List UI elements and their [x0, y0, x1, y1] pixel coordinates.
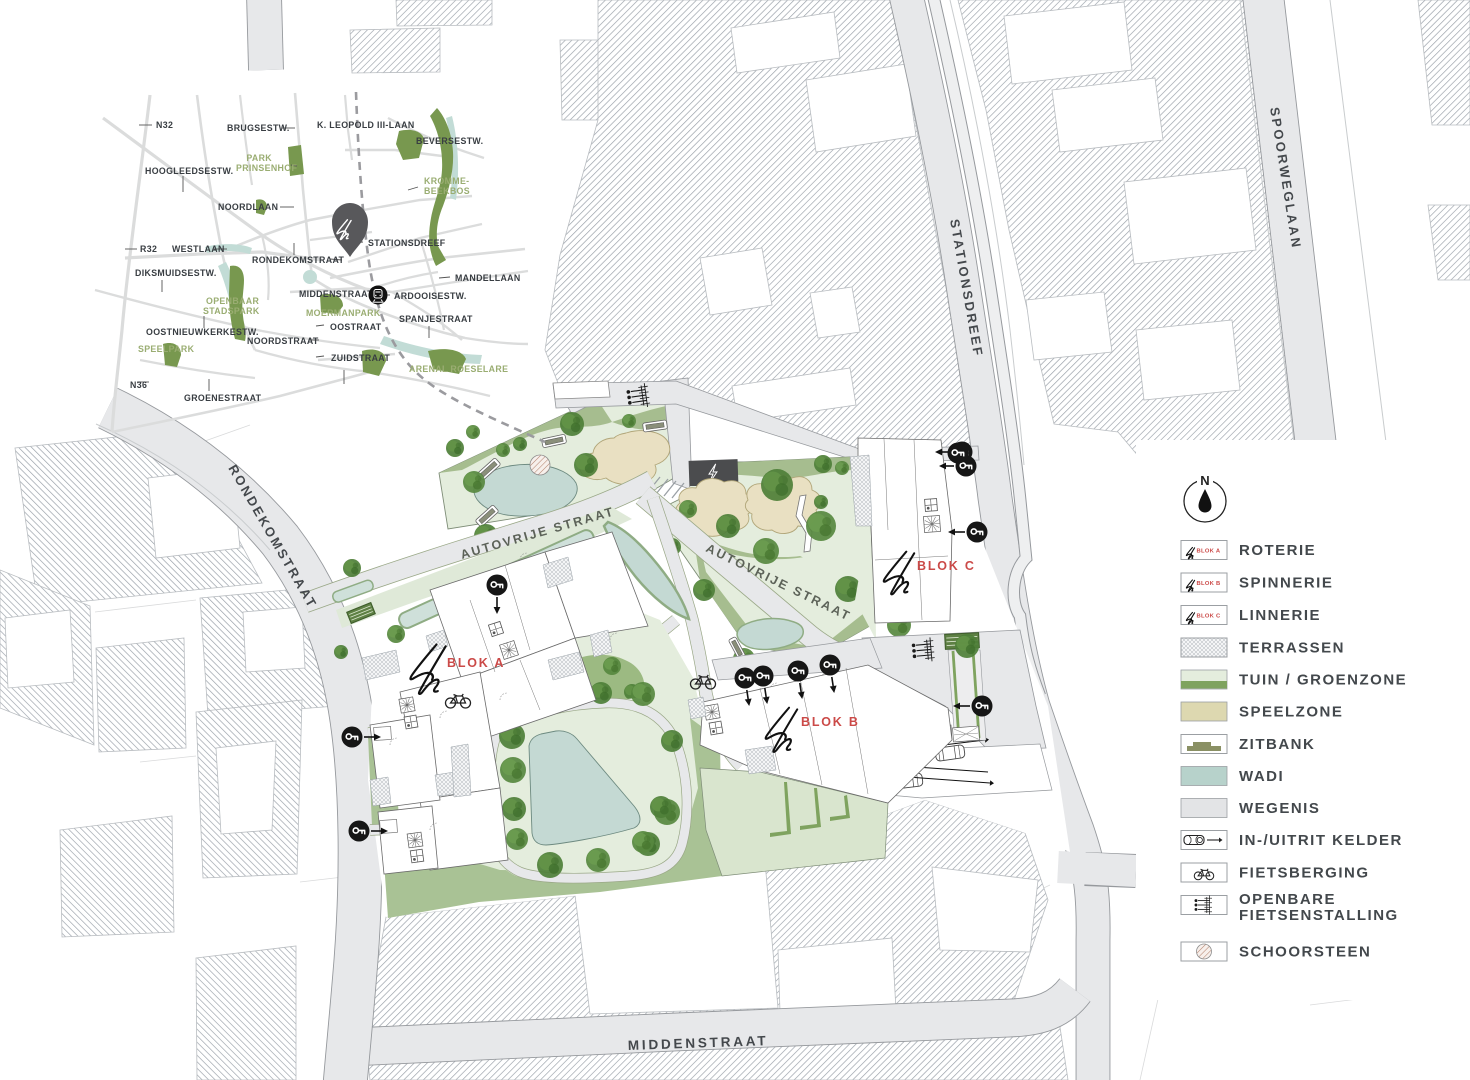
svg-text:OPENBAAR: OPENBAAR: [206, 296, 259, 306]
svg-text:IN-/UITRIT KELDER: IN-/UITRIT KELDER: [1239, 832, 1403, 849]
svg-text:BLOK B: BLOK B: [801, 715, 860, 729]
svg-text:SPINNERIE: SPINNERIE: [1239, 575, 1333, 592]
svg-text:RONDEKOMSTRAAT: RONDEKOMSTRAAT: [225, 462, 320, 612]
svg-text:WESTLAAN: WESTLAAN: [172, 244, 225, 254]
svg-text:SCHOORSTEEN: SCHOORSTEEN: [1239, 944, 1371, 961]
svg-text:DIKSMUIDSESTW.: DIKSMUIDSESTW.: [135, 268, 217, 278]
svg-text:FIETSENSTALLING: FIETSENSTALLING: [1239, 907, 1399, 924]
svg-text:BLOK B: BLOK B: [1197, 581, 1221, 587]
svg-text:STADSPARK: STADSPARK: [203, 306, 260, 316]
svg-text:N32: N32: [156, 120, 173, 130]
svg-text:ZUIDSTRAAT: ZUIDSTRAAT: [331, 353, 390, 363]
svg-text:R32: R32: [140, 244, 157, 254]
svg-text:OOSTNIEUWKERKESTW.: OOSTNIEUWKERKESTW.: [146, 327, 259, 337]
svg-text:N: N: [1200, 473, 1209, 488]
svg-text:ROTERIE: ROTERIE: [1239, 542, 1316, 559]
svg-text:TUIN / GROENZONE: TUIN / GROENZONE: [1239, 672, 1407, 689]
svg-text:SPEELPARK: SPEELPARK: [138, 344, 195, 354]
svg-text:SPEELZONE: SPEELZONE: [1239, 704, 1343, 721]
svg-text:WADI: WADI: [1239, 768, 1284, 785]
svg-text:BRUGSESTW.: BRUGSESTW.: [227, 123, 290, 133]
svg-text:PARK: PARK: [246, 153, 272, 163]
svg-text:ARDOOISESTW.: ARDOOISESTW.: [394, 291, 467, 301]
svg-text:BLOK A: BLOK A: [1197, 549, 1221, 555]
svg-text:SPANJESTRAAT: SPANJESTRAAT: [399, 314, 473, 324]
svg-text:LINNERIE: LINNERIE: [1239, 607, 1321, 624]
svg-text:PRINSENHOF: PRINSENHOF: [236, 163, 297, 173]
svg-text:K. LEOPOLD III-LAAN: K. LEOPOLD III-LAAN: [317, 120, 415, 130]
svg-text:OOSTRAAT: OOSTRAAT: [330, 322, 382, 332]
svg-text:MOERMANPARK: MOERMANPARK: [306, 308, 381, 318]
svg-text:NOORDSTRAAT: NOORDSTRAAT: [247, 336, 319, 346]
svg-text:KROMME-: KROMME-: [424, 176, 469, 186]
svg-text:MANDELLAAN: MANDELLAAN: [455, 273, 521, 283]
svg-text:MIDDENSTRAAT: MIDDENSTRAAT: [299, 289, 373, 299]
svg-text:BLOK C: BLOK C: [917, 559, 976, 573]
svg-text:NOORDLAAN: NOORDLAAN: [218, 202, 278, 212]
svg-text:RONDEKOMSTRAAT: RONDEKOMSTRAAT: [252, 255, 344, 265]
svg-text:BEVERSESTW.: BEVERSESTW.: [416, 136, 483, 146]
svg-text:BEEKBOS: BEEKBOS: [424, 186, 470, 196]
svg-text:ARENAL ROESELARE: ARENAL ROESELARE: [409, 364, 508, 374]
svg-text:WEGENIS: WEGENIS: [1239, 800, 1320, 817]
svg-text:OPENBARE: OPENBARE: [1239, 891, 1336, 908]
svg-text:N36: N36: [130, 380, 147, 390]
svg-text:GROENESTRAAT: GROENESTRAAT: [184, 393, 262, 403]
svg-text:HOOGLEEDSESTW.: HOOGLEEDSESTW.: [145, 166, 233, 176]
svg-text:BLOK A: BLOK A: [447, 656, 505, 670]
svg-text:TERRASSEN: TERRASSEN: [1239, 640, 1345, 657]
svg-text:BLOK C: BLOK C: [1197, 614, 1222, 620]
svg-text:ZITBANK: ZITBANK: [1239, 736, 1315, 753]
svg-text:FIETSBERGING: FIETSBERGING: [1239, 865, 1370, 882]
svg-text:STATIONSDREEF: STATIONSDREEF: [368, 238, 446, 248]
